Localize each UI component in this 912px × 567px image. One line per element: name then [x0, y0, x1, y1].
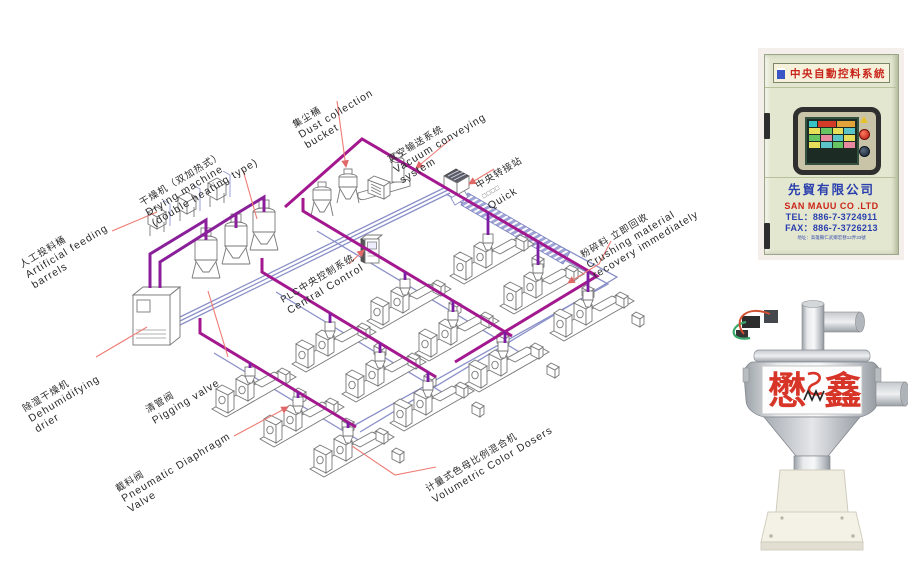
- molding-machine: [465, 342, 559, 392]
- pneumatic-fittings: [734, 310, 778, 339]
- label-artificial-feeding: 人工投料桶 Artificial feeding barrels: [17, 212, 116, 291]
- touch-screen[interactable]: [805, 117, 859, 165]
- inlet-pipe: [802, 304, 824, 352]
- brand-char-right: 鑫: [824, 368, 862, 413]
- label-volumetric-dosers: 计量式色母比例混合机 Volumetric Color Dosers: [423, 413, 555, 506]
- label-drying-machine: 干燥机（双加热式） Drying machine (double heating…: [137, 136, 260, 230]
- brand-char-left: 懋: [768, 368, 806, 413]
- cabinet-title: 中央自動控料系統: [790, 66, 886, 81]
- power-button[interactable]: [859, 146, 870, 157]
- brand-plate: 懋 鑫: [762, 366, 862, 414]
- lid: [754, 350, 870, 362]
- label-en: Volumetric Color Dosers: [430, 424, 555, 506]
- hopper-loader-photo: 懋 鑫: [716, 296, 908, 562]
- label-en: Pneumatic Diaphragm: [120, 430, 233, 505]
- hopper-cone: [764, 417, 860, 456]
- company-name-en: SAN MAUU CO .LTD: [769, 201, 894, 212]
- touch-panel-bezel: [793, 107, 881, 175]
- outlet-neck: [794, 456, 830, 470]
- company-fax: FAX：886-7-3726213: [769, 223, 894, 234]
- label-dust-collection: 集尘桶 Dust collection bucket: [290, 77, 381, 152]
- red-indicator-lamp: [859, 129, 870, 140]
- label-vacuum-conveying: 真空输送系统 Vacuum conveying system: [385, 101, 494, 186]
- label-pigging-valve: 清管阀 Pigging valve: [143, 366, 222, 427]
- molding-machines: [212, 234, 644, 477]
- label-crushing-recovery: 粉碎料 立即回收 Crushing material recovery imme…: [578, 188, 700, 281]
- molding-machine: [550, 291, 644, 341]
- inlet-elbow-pipe: [824, 312, 860, 332]
- cabinet-logo-icon: [777, 68, 785, 79]
- label-dehumidifying: 除湿干燥机 Dehumidifying drier: [20, 363, 108, 435]
- central-transfer-station: [444, 169, 469, 195]
- label-diaphragm-valve: 截料阀 Pneumatic Diaphragm Valve: [113, 420, 239, 515]
- cabinet-text-block: 先貿有限公司 SAN MAUU CO .LTD TEL：886-7-372491…: [769, 183, 894, 241]
- cabinet-hinge: [764, 113, 770, 139]
- control-cabinet-photo: 中央自動控料系統 先貿有限公司 SAN MAUU CO .LTD TEL：886…: [758, 48, 904, 260]
- cabinet-title-plate: 中央自動控料系統: [773, 63, 890, 83]
- company-address: 地址：高雄縣仁武鄉宏巷12弄33號: [769, 235, 894, 241]
- company-tel: TEL：886-7-3724911: [769, 212, 894, 223]
- dehumidifying-drier: [133, 287, 180, 345]
- molding-machine: [310, 427, 404, 477]
- hopper-loader: 懋 鑫: [716, 296, 908, 562]
- control-cabinet: 中央自動控料系統 先貿有限公司 SAN MAUU CO .LTD TEL：886…: [764, 54, 899, 255]
- base-stand: [761, 470, 863, 550]
- warning-icon: [860, 116, 868, 123]
- company-name-zh: 先貿有限公司: [769, 183, 894, 199]
- page: { "diagram": { "labels": { "artificial_f…: [0, 0, 912, 562]
